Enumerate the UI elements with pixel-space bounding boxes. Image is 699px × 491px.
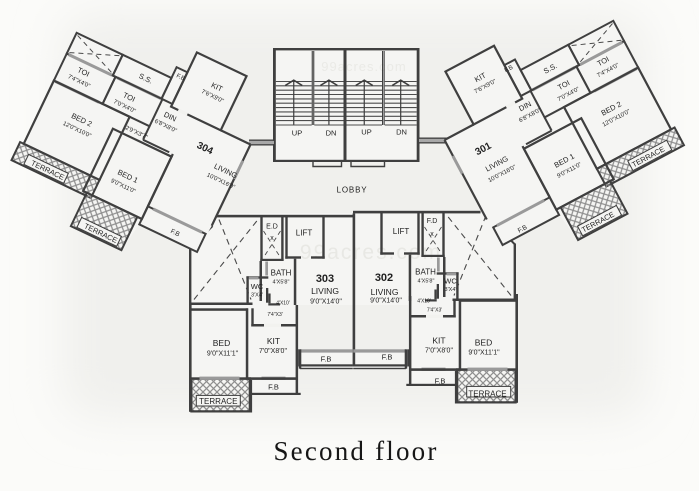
svg-text:7'4"X3': 7'4"X3' — [267, 312, 282, 318]
svg-text:9'0"X11'1": 9'0"X11'1" — [207, 351, 239, 358]
svg-text:WC: WC — [444, 277, 457, 286]
svg-text:x: x — [430, 231, 434, 238]
svg-text:TERRACE: TERRACE — [199, 397, 237, 406]
svg-text:7'0"X8'0": 7'0"X8'0" — [259, 348, 287, 355]
svg-text:KIT: KIT — [432, 336, 445, 346]
svg-text:303: 303 — [316, 273, 334, 285]
svg-text:99acres.com: 99acres.com — [321, 59, 406, 74]
svg-text:F.D: F.D — [427, 218, 438, 225]
svg-text:BATH: BATH — [271, 269, 292, 278]
svg-text:9'0"X14'0": 9'0"X14'0" — [310, 299, 342, 306]
svg-text:4'X5'8": 4'X5'8" — [418, 279, 435, 285]
svg-text:BED: BED — [475, 338, 492, 348]
svg-text:LIFT: LIFT — [393, 227, 410, 236]
svg-text:BED: BED — [213, 338, 230, 348]
svg-text:WC: WC — [251, 282, 264, 291]
svg-text:Second floor: Second floor — [273, 436, 438, 466]
svg-text:9'0"X14'0": 9'0"X14'0" — [370, 298, 402, 305]
svg-text:DN: DN — [326, 129, 337, 138]
svg-text:LIVING: LIVING — [371, 287, 399, 297]
svg-text:UP: UP — [361, 128, 371, 137]
svg-text:E.D: E.D — [266, 224, 278, 231]
svg-text:DN: DN — [396, 128, 407, 137]
svg-text:F.B: F.B — [268, 383, 279, 392]
svg-text:x: x — [270, 235, 274, 242]
svg-text:4'X10': 4'X10' — [276, 301, 290, 307]
svg-text:BATH: BATH — [415, 268, 436, 277]
svg-text:7'0"X8'0": 7'0"X8'0" — [425, 348, 453, 355]
svg-text:LIFT: LIFT — [296, 229, 313, 238]
svg-text:LOBBY: LOBBY — [337, 186, 368, 195]
svg-text:F.B: F.B — [435, 377, 446, 386]
svg-text:F.B: F.B — [382, 353, 393, 362]
svg-text:9'0"X11'1": 9'0"X11'1" — [468, 350, 500, 357]
svg-text:99acres.com: 99acres.com — [300, 241, 442, 264]
svg-text:3'X4': 3'X4' — [251, 293, 263, 299]
svg-text:F.B: F.B — [321, 355, 332, 364]
svg-text:4'X10': 4'X10' — [417, 299, 431, 305]
svg-text:KIT: KIT — [267, 336, 280, 346]
svg-text:UP: UP — [292, 129, 302, 138]
svg-text:7'4"X3': 7'4"X3' — [427, 308, 442, 314]
svg-text:3'X4': 3'X4' — [445, 287, 457, 293]
svg-text:LIVING: LIVING — [311, 286, 339, 296]
svg-text:TERRACE: TERRACE — [468, 390, 506, 399]
svg-text:4'X5'8": 4'X5'8" — [273, 280, 290, 286]
svg-text:302: 302 — [375, 272, 393, 284]
